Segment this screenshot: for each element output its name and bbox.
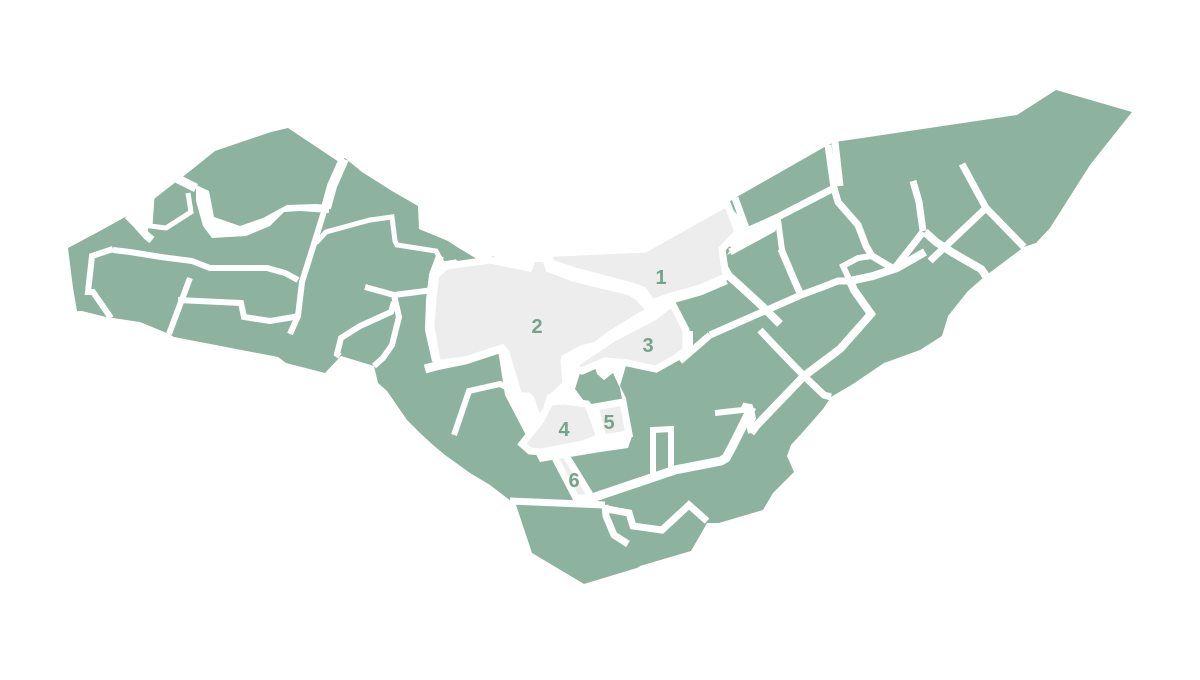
svg-text:3: 3: [642, 335, 653, 357]
svg-text:2: 2: [531, 316, 542, 338]
svg-text:4: 4: [558, 419, 570, 441]
svg-text:6: 6: [568, 470, 579, 492]
svg-text:5: 5: [603, 412, 614, 434]
svg-text:1: 1: [655, 267, 666, 289]
